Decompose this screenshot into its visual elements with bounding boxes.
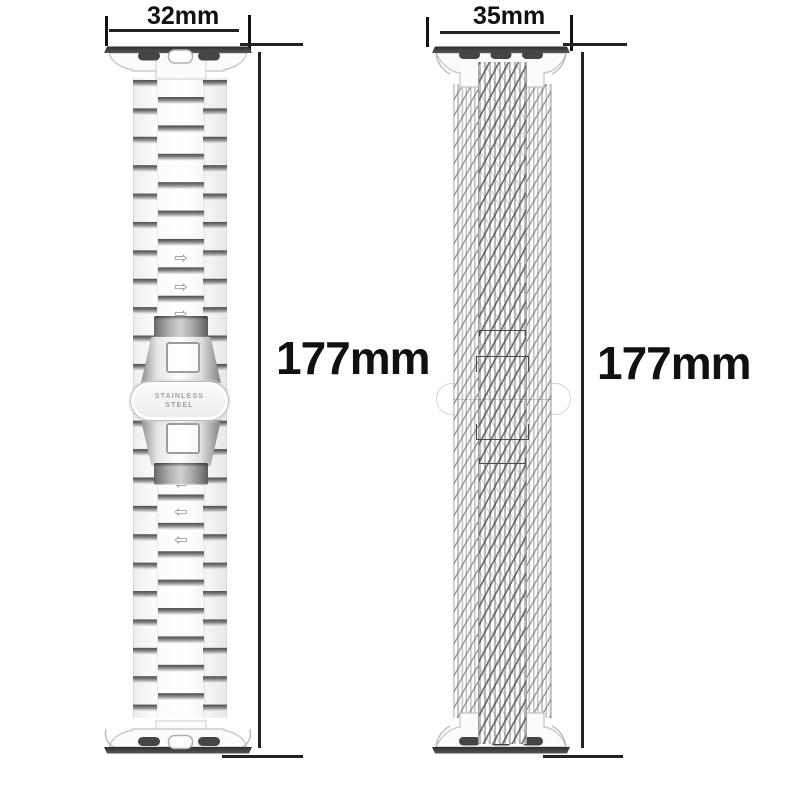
clasp-center-plate: STAINLESS STEEL: [130, 381, 229, 421]
mesh-marking-big-bottom: [476, 424, 529, 440]
right-top-adapter-slot: [459, 51, 480, 60]
clasp-engraving-line2: STEEL: [131, 401, 228, 410]
right-bottom-adapter-wing-left: [436, 726, 450, 747]
product-dimension-diagram: 32mm 177mm 35mm 177mm ⇨ ⇨ ⇨ ⇦ ⇦ ⇦ STAINL…: [0, 0, 800, 800]
clasp-engraving: STAINLESS STEEL: [131, 382, 228, 410]
left-top-adapter: [104, 47, 252, 80]
right-top-adapter-wing-left: [436, 53, 450, 74]
clasp-link-bar-top: [154, 316, 208, 338]
right-top-adapter-bar: [432, 47, 570, 54]
left-width-tick-left: [105, 16, 108, 46]
right-arrow-icon: ⇨: [164, 249, 198, 266]
left-width-dimension-line: [109, 29, 239, 32]
left-top-adapter-slot: [198, 52, 220, 61]
left-length-dimension-line: [258, 52, 261, 748]
mesh-marking-small-bottom: [479, 458, 526, 464]
left-arrow-icon: ⇦: [164, 531, 198, 548]
left-band-width-label: 32mm: [147, 2, 219, 31]
left-bottom-adapter-button: [169, 736, 193, 749]
left-top-adapter-slot: [138, 52, 160, 61]
right-top-adapter-slot: [522, 51, 543, 60]
left-length-extension-bottom: [222, 755, 303, 758]
right-top-adapter-slot: [491, 51, 512, 60]
right-arrow-icon: ⇨: [164, 278, 198, 295]
right-bottom-adapter-wing-right: [552, 726, 566, 747]
left-top-adapter-bar: [104, 47, 252, 54]
right-bottom-adapter-slot: [459, 737, 480, 746]
left-bottom-adapter-bar: [104, 747, 252, 754]
right-width-dimension-line: [440, 31, 560, 34]
right-band-length-label: 177mm: [597, 336, 751, 390]
left-bottom-adapter-slot: [198, 737, 220, 746]
right-length-dimension-line: [581, 52, 584, 748]
left-bottom-adapter: [104, 721, 252, 754]
left-bottom-adapter-body: [109, 729, 247, 747]
right-band-width-label: 35mm: [473, 2, 545, 31]
right-length-extension-bottom: [543, 755, 623, 758]
mesh-marking-big-top: [476, 356, 529, 372]
right-bottom-adapter-bar: [432, 747, 570, 754]
left-band-length-label: 177mm: [276, 331, 430, 385]
left-arrow-icon: ⇦: [164, 503, 198, 520]
left-bottom-adapter-slot: [138, 737, 160, 746]
left-bottom-adapter-center-tab: [156, 721, 206, 747]
right-length-extension-top: [563, 43, 627, 46]
clasp-window-top: [166, 342, 200, 373]
mesh-clasp-midline: [453, 399, 552, 400]
left-length-extension-top: [240, 43, 303, 46]
left-top-adapter-button: [169, 50, 193, 63]
adapters-layer: [0, 0, 800, 800]
left-top-adapter-center-tab: [156, 53, 206, 79]
clasp-window-bottom: [166, 423, 200, 454]
clasp-link-bar-bottom: [154, 463, 208, 485]
mesh-marking-small-top: [479, 330, 526, 336]
left-bottom-adapter-wing-left: [105, 729, 114, 747]
left-top-adapter-body: [109, 53, 247, 71]
clasp-engraving-line1: STAINLESS: [131, 392, 228, 401]
right-width-tick-left: [426, 17, 429, 47]
left-bottom-adapter-wing-right: [242, 729, 251, 747]
right-mesh-center-braid: [478, 62, 527, 744]
right-top-adapter-wing-right: [552, 53, 566, 74]
